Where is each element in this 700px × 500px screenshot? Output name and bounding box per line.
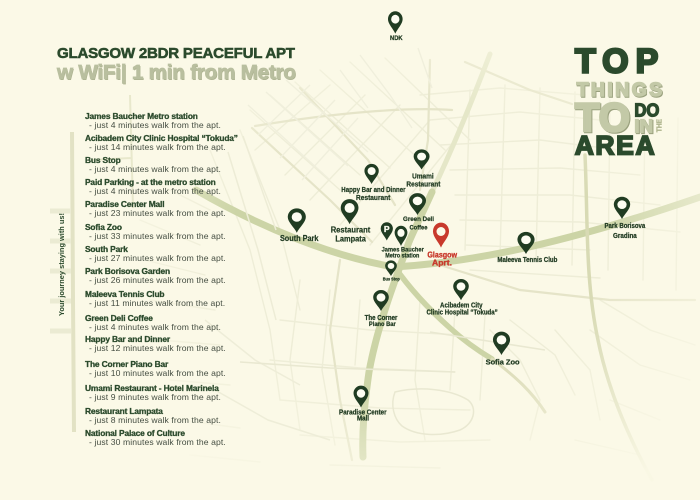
svg-text:Mall: Mall xyxy=(357,416,369,423)
svg-text:Happy Bar and Dinner: Happy Bar and Dinner xyxy=(341,186,405,194)
svg-text:P: P xyxy=(384,224,390,234)
svg-text:Restaurant: Restaurant xyxy=(356,194,391,202)
svg-text:Restaurant: Restaurant xyxy=(406,179,440,188)
svg-text:Coffee: Coffee xyxy=(410,224,428,231)
svg-text:Clinic Hospital “Tokuda”: Clinic Hospital “Tokuda” xyxy=(427,310,498,317)
svg-text:Metro station: Metro station xyxy=(385,252,419,259)
svg-text:Sofia Zoo: Sofia Zoo xyxy=(486,357,520,366)
svg-text:Green Deli: Green Deli xyxy=(403,216,434,223)
svg-text:NDK: NDK xyxy=(390,35,403,42)
svg-text:Piano Bar: Piano Bar xyxy=(369,321,396,328)
svg-text:Bus Stop: Bus Stop xyxy=(383,276,400,281)
svg-text:Park Borisova: Park Borisova xyxy=(605,223,646,230)
svg-text:Maleeva Tennis Club: Maleeva Tennis Club xyxy=(497,257,557,264)
svg-text:South Park: South Park xyxy=(280,233,319,243)
svg-text:Gradina: Gradina xyxy=(613,233,637,240)
svg-text:Aprt.: Aprt. xyxy=(432,258,452,268)
svg-text:Lampata: Lampata xyxy=(335,234,366,244)
